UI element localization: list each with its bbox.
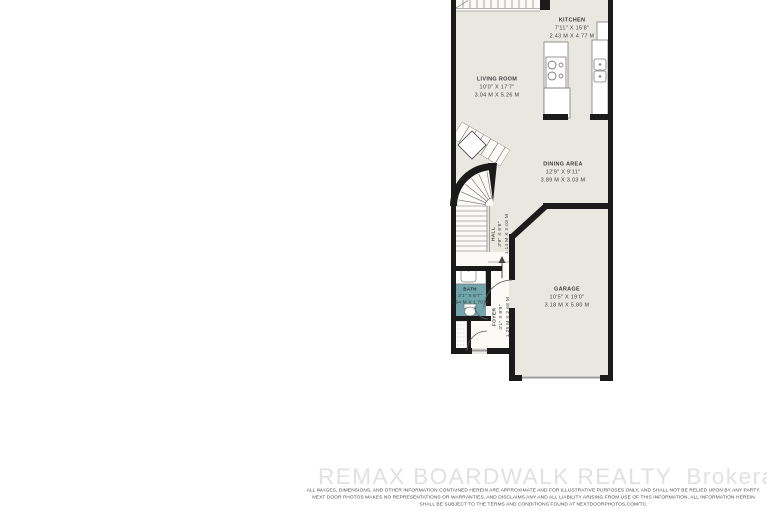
foyer-metric-dims: 1.25 M X 2.68 M — [504, 297, 511, 337]
wall-kitchen-left — [543, 114, 568, 120]
room-label-dining-area: DINING AREA 12'9" X 9'11" 3.89 M X 3.03 … — [541, 160, 586, 184]
wall-bath-top — [456, 266, 502, 271]
room-label-garage: GARAGE 10'5" X 19'0" 3.18 M X 5.80 M — [545, 285, 590, 309]
wall-garage-top — [543, 203, 608, 209]
wall-kitchen-right — [590, 114, 608, 120]
front-door — [472, 350, 487, 352]
room-label-bath: BATH 3'1" X 5'7" 0.94 M X 1.70 M — [451, 287, 489, 306]
wall-top-stub — [540, 0, 550, 10]
hall-name: HALL — [490, 214, 497, 254]
wall-garage-bottom-left — [509, 375, 522, 381]
wall-right — [608, 0, 613, 381]
dining-area-metric-dims: 3.89 M X 3.03 M — [541, 176, 586, 184]
garage-name: GARAGE — [545, 285, 590, 293]
room-label-foyer: FOYER 4'1" X 8'9" 1.25 M X 2.68 M — [491, 297, 511, 337]
garage-imperial-dims: 10'5" X 19'0" — [545, 293, 590, 301]
hall-imperial-dims: 3'9" X 6'8" — [497, 214, 504, 254]
room-label-living-room: LIVING ROOM 10'0" X 17'7" 3.04 M X 5.26 … — [475, 75, 520, 99]
foyer-imperial-dims: 4'1" X 8'9" — [498, 297, 505, 337]
disclaimer-line-2: NEXT DOOR PHOTOS MAKES NO REPRESENTATION… — [300, 494, 767, 501]
disclaimer: ALL IMAGES, DIMENSIONS, AND OTHER INFORM… — [300, 487, 767, 511]
living-room-metric-dims: 3.04 M X 5.26 M — [475, 91, 520, 99]
wall-foyer-bottom-right — [487, 348, 509, 354]
foyer-name: FOYER — [491, 297, 498, 337]
hall-metric-dims: 1.14 M X 2.03 M — [503, 214, 510, 254]
exterior-mask — [420, 354, 509, 414]
kitchen-peninsula-counter — [544, 42, 570, 118]
living-room-name: LIVING ROOM — [475, 75, 520, 83]
disclaimer-line-3: SHALL BE SUBJECT TO THE TERMS AND CONDIT… — [300, 501, 767, 508]
dining-area-imperial-dims: 12'9" X 9'11" — [541, 168, 586, 176]
kitchen-name: KITCHEN — [550, 16, 595, 24]
bath-metric-dims: 0.94 M X 1.70 M — [451, 299, 489, 305]
floor-plan-drawing — [0, 0, 767, 511]
wall-garage-bottom-right — [600, 375, 613, 381]
kitchen-imperial-dims: 7'11" X 15'8" — [550, 24, 595, 32]
brokerage-name: REMAX BOARDWALK REALTY — [318, 464, 672, 489]
garage-metric-dims: 3.18 M X 5.80 M — [545, 301, 590, 309]
toilet-icon — [464, 304, 476, 316]
kitchen-metric-dims: 2.43 M X 4.77 M — [550, 32, 595, 40]
floor-plan-page: KITCHEN 7'11" X 15'8" 2.43 M X 4.77 M LI… — [0, 0, 767, 511]
living-room-imperial-dims: 10'0" X 17'7" — [475, 83, 520, 91]
stairs-upper-flight — [456, 0, 540, 11]
room-label-kitchen: KITCHEN 7'11" X 15'8" 2.43 M X 4.77 M — [550, 16, 595, 40]
dining-area-name: DINING AREA — [541, 160, 586, 168]
stairs-lower-flight — [456, 206, 490, 252]
disclaimer-line-1: ALL IMAGES, DIMENSIONS, AND OTHER INFORM… — [300, 487, 767, 494]
brokerage-suffix: Brokerage — [686, 464, 767, 489]
garage-door — [522, 377, 600, 379]
room-label-hall: HALL 3'9" X 6'8" 1.14 M X 2.03 M — [490, 214, 510, 254]
